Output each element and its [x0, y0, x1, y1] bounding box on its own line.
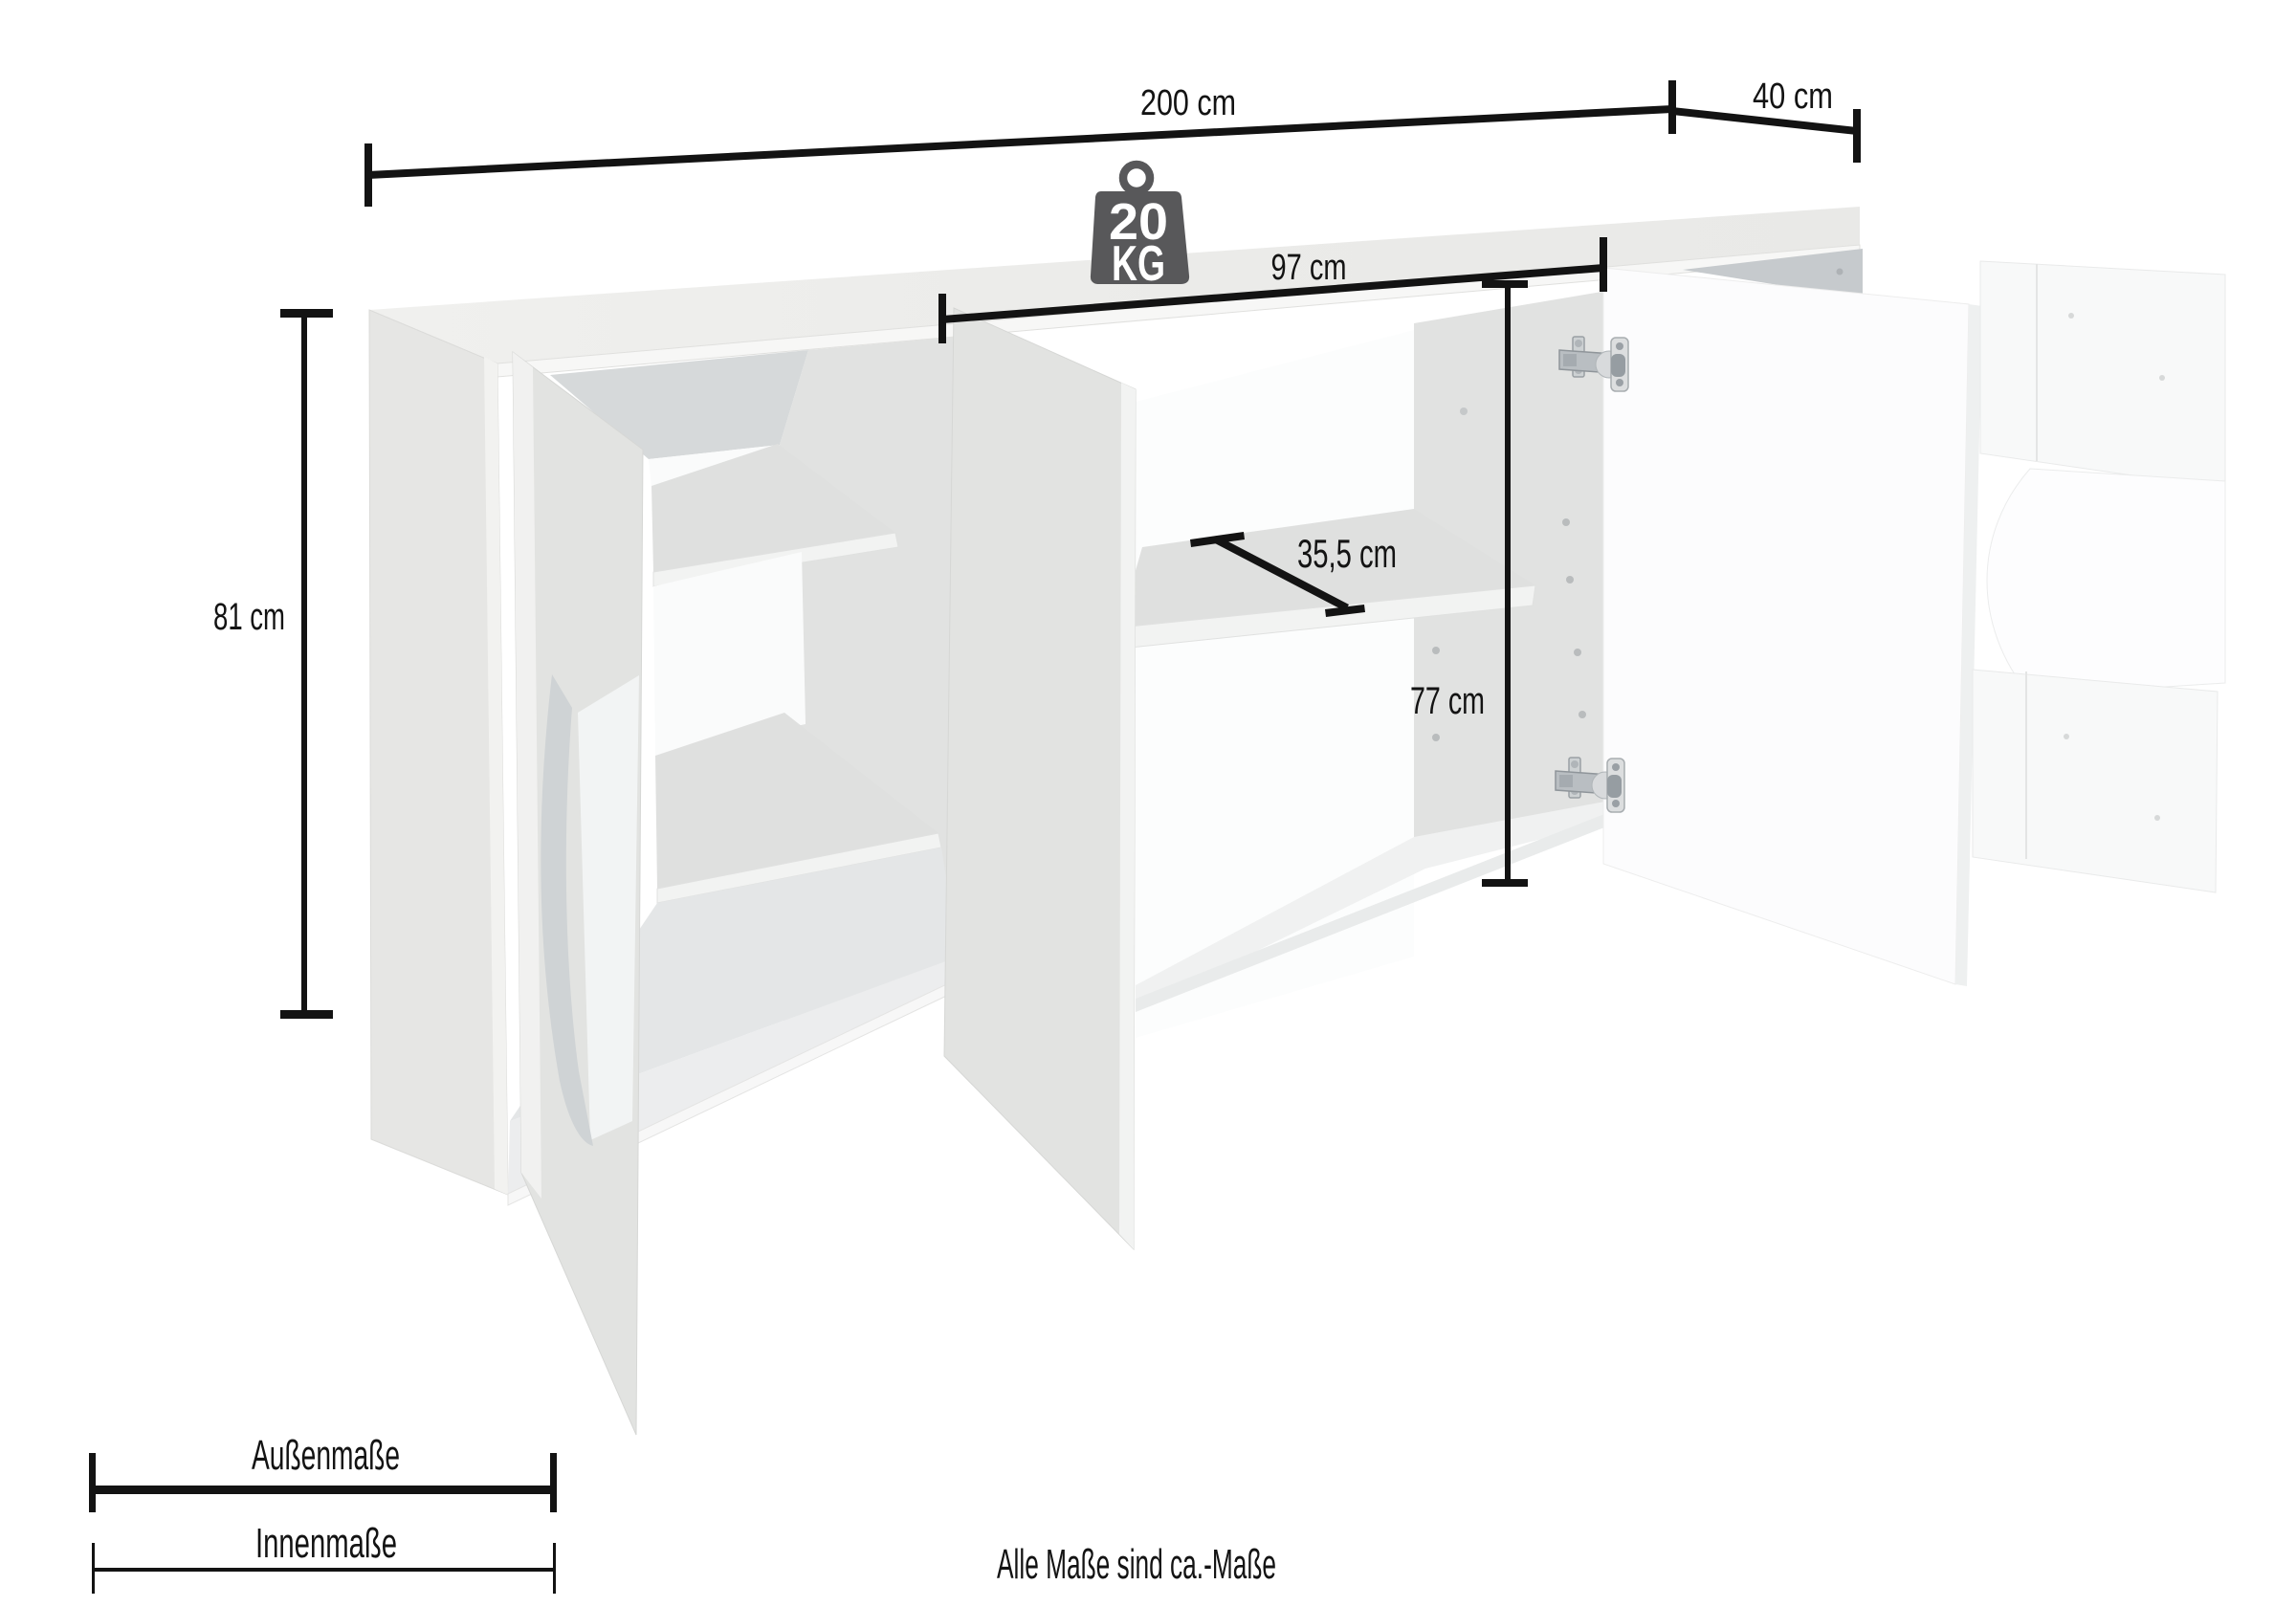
svg-text:77 cm: 77 cm — [1410, 680, 1485, 722]
svg-text:Innenmaße: Innenmaße — [255, 1520, 397, 1567]
svg-text:Außenmaße: Außenmaße — [252, 1432, 400, 1479]
svg-text:40 cm: 40 cm — [1753, 77, 1833, 117]
svg-text:200 cm: 200 cm — [1140, 83, 1236, 123]
svg-text:Alle Maße sind ca.-Maße: Alle Maße sind ca.-Maße — [997, 1541, 1276, 1588]
svg-text:35,5 cm: 35,5 cm — [1297, 531, 1397, 576]
svg-text:81 cm: 81 cm — [213, 596, 285, 638]
svg-text:KG: KG — [1112, 236, 1165, 292]
svg-text:97 cm: 97 cm — [1271, 248, 1347, 288]
